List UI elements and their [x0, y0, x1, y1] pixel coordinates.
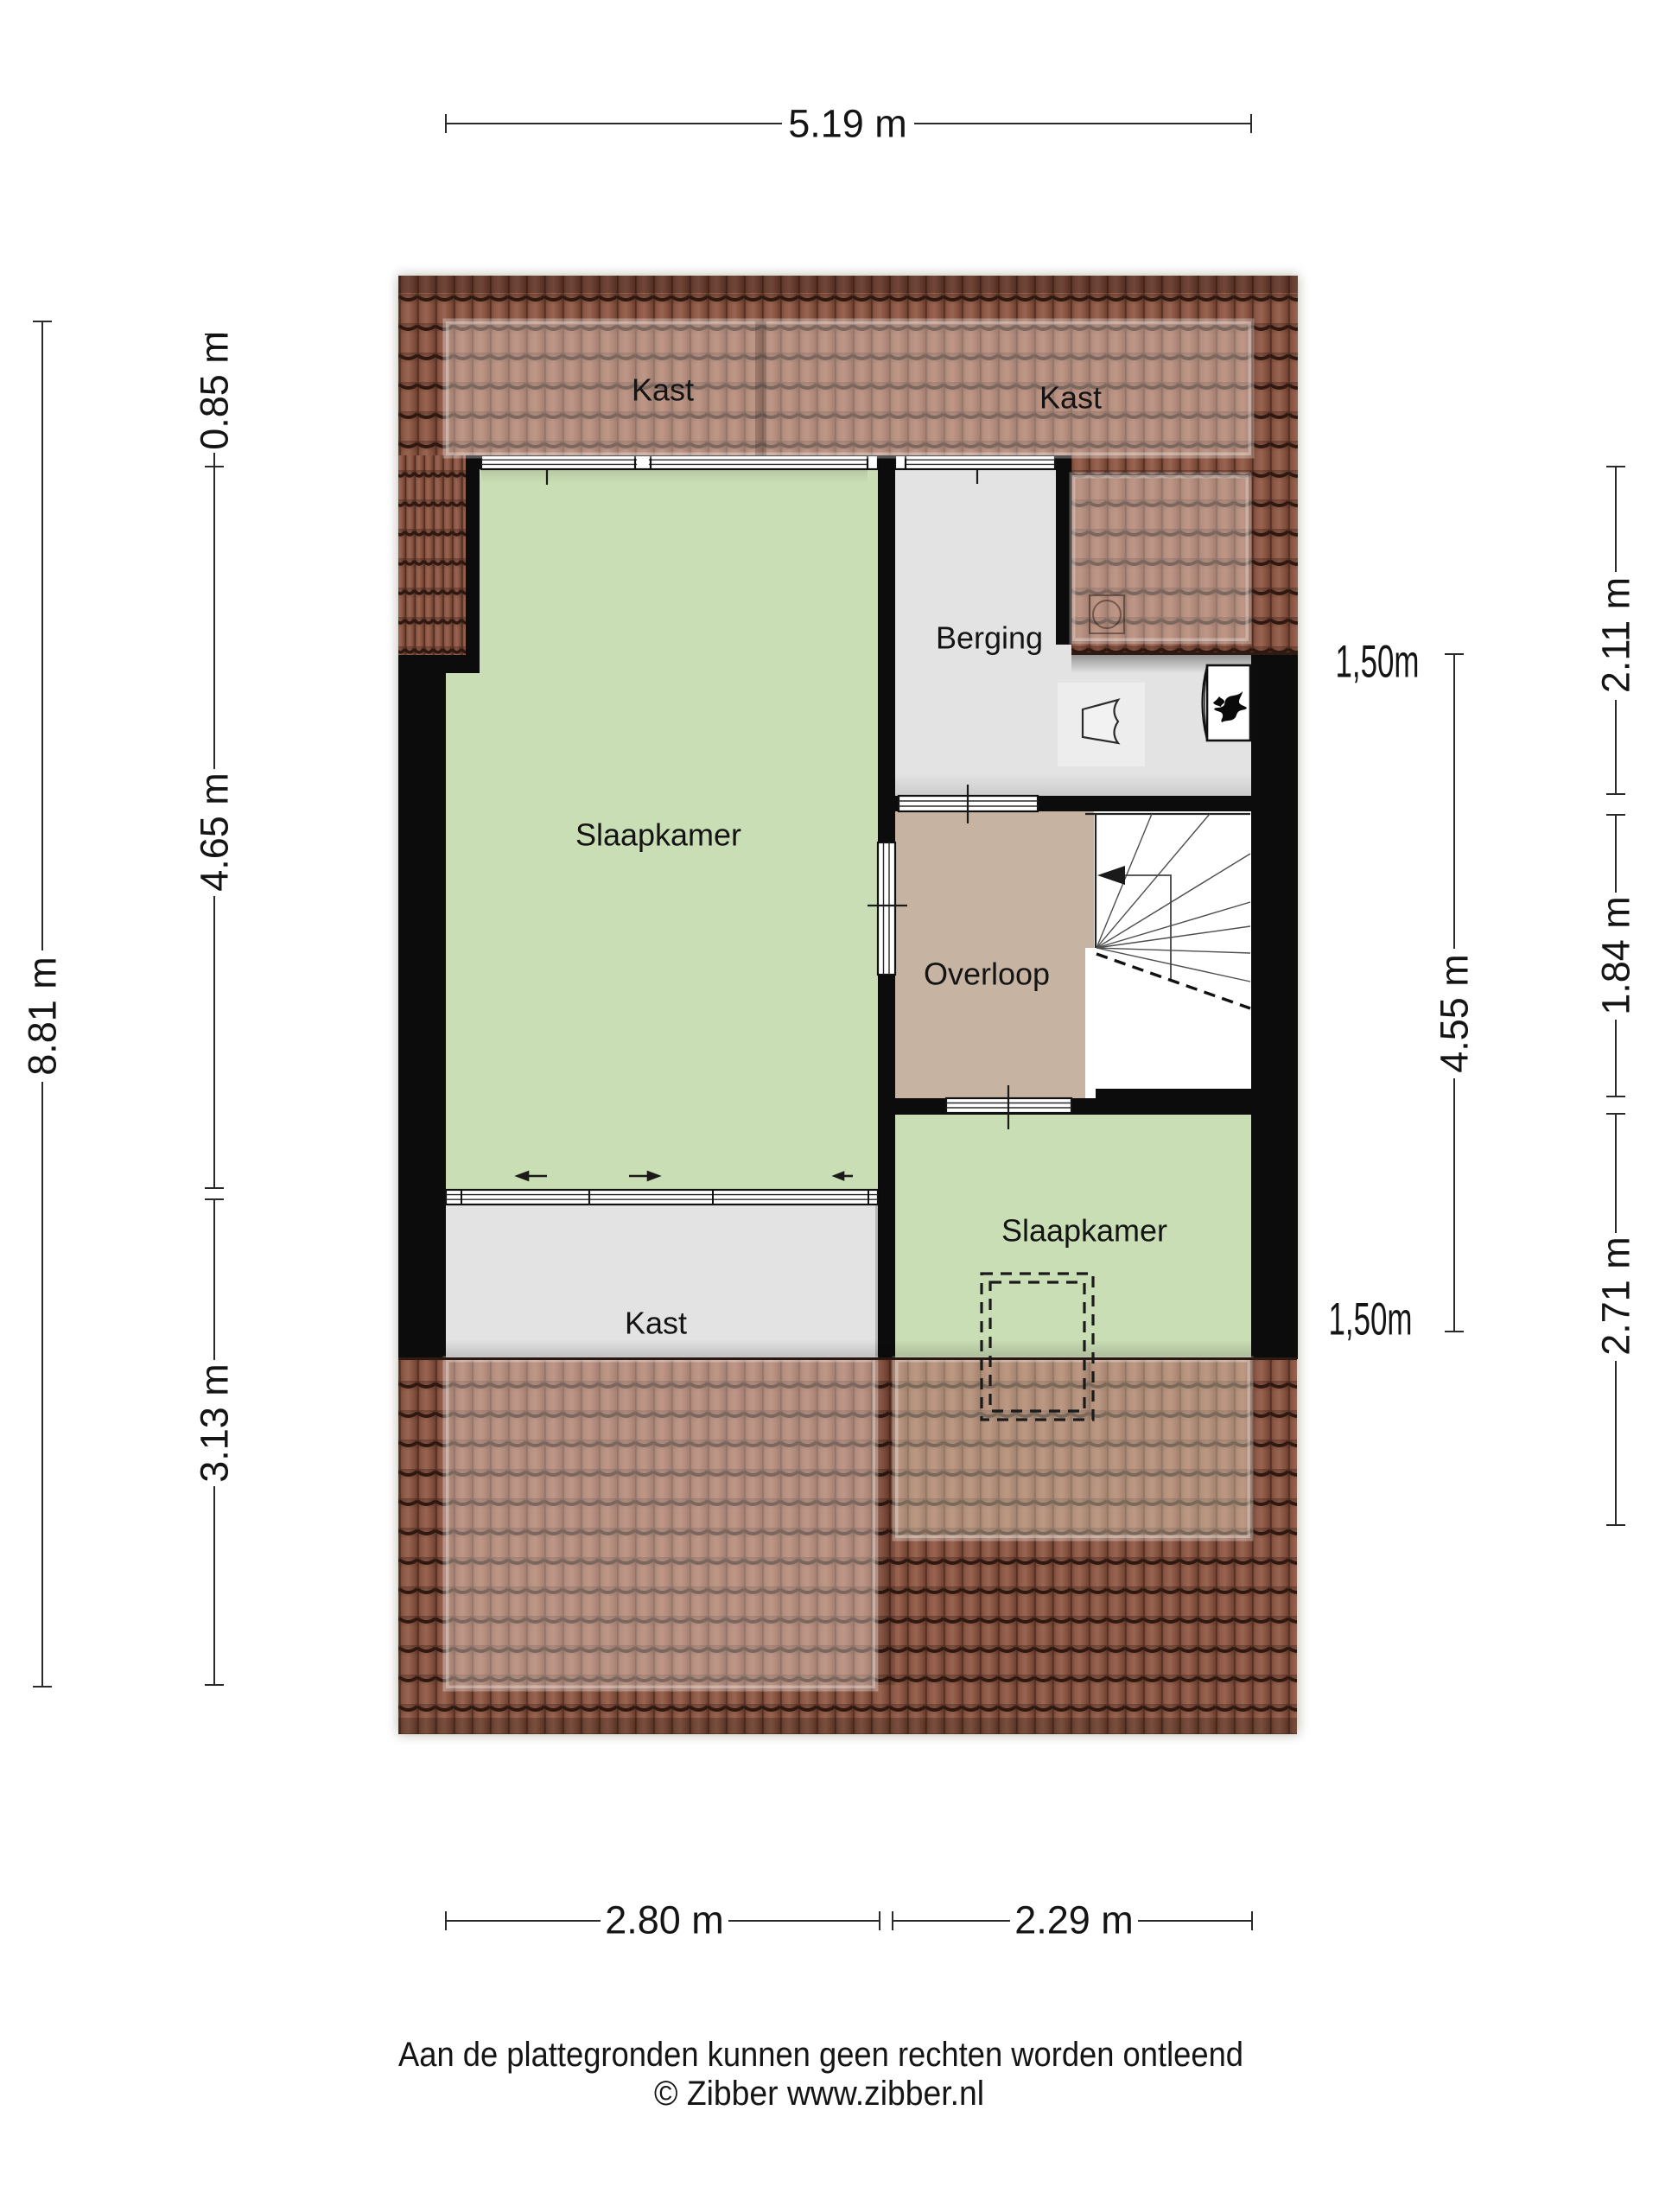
svg-text:© Zibber www.zibber.nl: © Zibber www.zibber.nl: [654, 2075, 984, 2113]
svg-text:0.85 m: 0.85 m: [193, 331, 237, 450]
svg-text:2.29 m: 2.29 m: [1014, 1898, 1134, 1942]
svg-text:1,50m: 1,50m: [1329, 1294, 1413, 1345]
svg-text:2.11 m: 2.11 m: [1594, 577, 1638, 693]
svg-text:1,50m: 1,50m: [1336, 637, 1420, 688]
svg-text:Slaapkamer: Slaapkamer: [575, 817, 741, 853]
svg-text:Berging: Berging: [936, 620, 1043, 656]
svg-text:Overloop: Overloop: [924, 957, 1050, 992]
svg-text:Kast: Kast: [1039, 380, 1102, 416]
svg-text:5.19 m: 5.19 m: [788, 102, 907, 146]
svg-text:1.84 m: 1.84 m: [1594, 896, 1638, 1015]
svg-text:Aan de plattegronden kunnen ge: Aan de plattegronden kunnen geen rechten…: [398, 2036, 1243, 2074]
svg-text:Kast: Kast: [625, 1306, 687, 1341]
svg-text:4.55 m: 4.55 m: [1433, 954, 1477, 1073]
svg-text:2.80 m: 2.80 m: [605, 1898, 724, 1942]
svg-text:4.65 m: 4.65 m: [193, 772, 237, 892]
svg-text:2.71 m: 2.71 m: [1594, 1236, 1638, 1356]
svg-text:3.13 m: 3.13 m: [193, 1363, 237, 1483]
svg-text:Kast: Kast: [632, 372, 694, 408]
svg-text:8.81 m: 8.81 m: [21, 957, 65, 1076]
svg-text:Slaapkamer: Slaapkamer: [1001, 1213, 1167, 1249]
